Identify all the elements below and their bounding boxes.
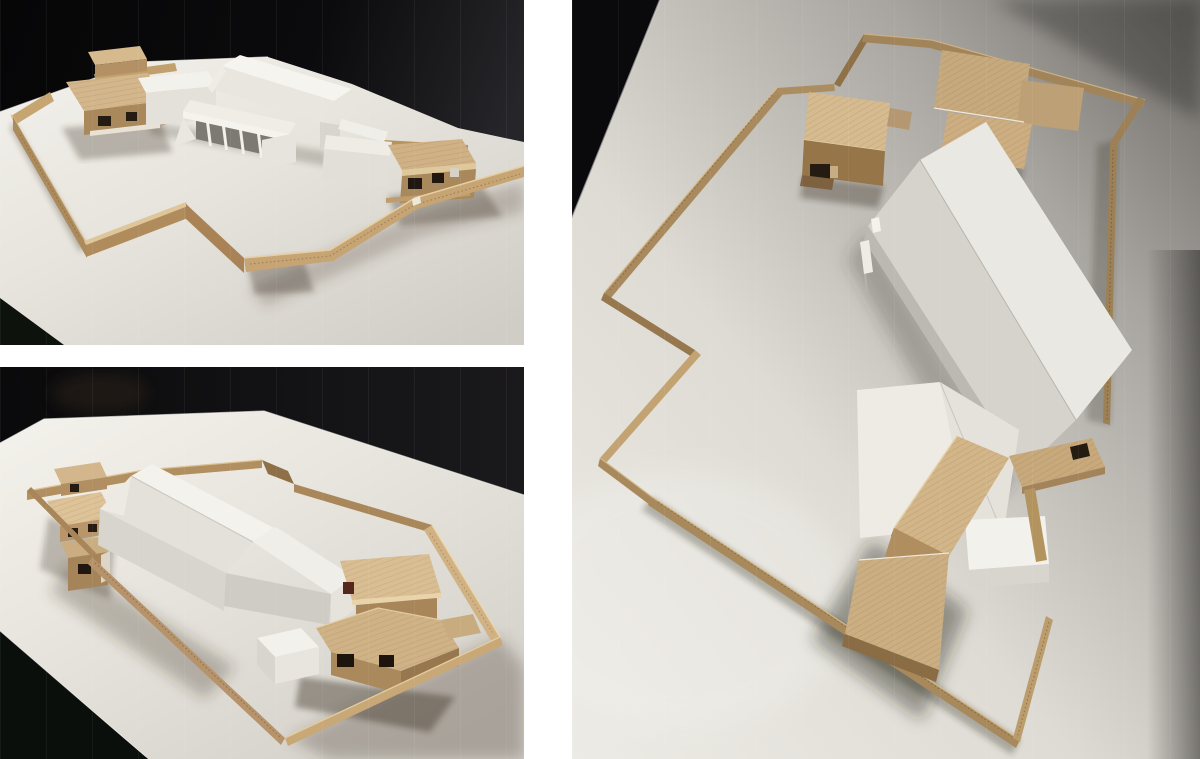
photo-model-aerial-view: [572, 0, 1200, 759]
window-opening: [88, 524, 97, 532]
photo-collage: [0, 0, 1200, 759]
window-opening: [408, 178, 422, 189]
photo-model-front-view: [0, 0, 524, 345]
model-oblique-view-scene: [0, 367, 524, 759]
window-opening: [98, 116, 111, 126]
recessed-opening: [343, 582, 354, 594]
window-opening: [126, 112, 137, 121]
photo-model-oblique-view: [0, 367, 524, 759]
window-opening: [70, 484, 79, 492]
window-opening: [432, 173, 444, 183]
window-opening: [379, 655, 394, 667]
window-opening: [337, 654, 354, 667]
model-aerial-view-scene: [572, 0, 1200, 759]
model-front-view-scene: [0, 0, 524, 345]
window-opening: [78, 564, 91, 574]
